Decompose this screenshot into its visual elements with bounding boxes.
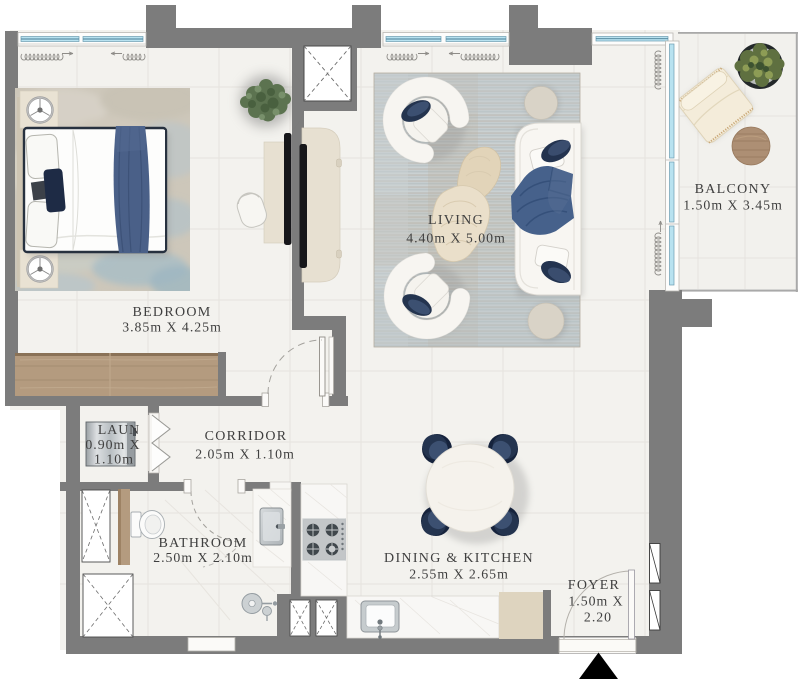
svg-text:2.05m X 1.10m: 2.05m X 1.10m <box>195 447 295 462</box>
svg-text:BALCONY: BALCONY <box>695 182 772 197</box>
svg-text:1.50m X 3.45m: 1.50m X 3.45m <box>683 198 783 213</box>
svg-text:2.50m X 2.10m: 2.50m X 2.10m <box>153 550 253 565</box>
svg-text:2.20: 2.20 <box>584 610 612 625</box>
svg-text:DINING & KITCHEN: DINING & KITCHEN <box>384 551 534 566</box>
svg-text:BATHROOM: BATHROOM <box>159 536 248 551</box>
svg-text:1.10m: 1.10m <box>94 452 134 467</box>
svg-text:FOYER: FOYER <box>568 578 620 593</box>
svg-text:LIVING: LIVING <box>428 213 484 228</box>
svg-text:3.85m X 4.25m: 3.85m X 4.25m <box>122 320 222 335</box>
svg-text:4.40m X 5.00m: 4.40m X 5.00m <box>406 231 506 246</box>
svg-text:CORRIDOR: CORRIDOR <box>205 429 288 444</box>
svg-text:0.90m X: 0.90m X <box>85 437 140 452</box>
svg-text:LAUN: LAUN <box>98 422 140 437</box>
svg-text:1.50m X: 1.50m X <box>568 594 623 609</box>
svg-text:2.55m X 2.65m: 2.55m X 2.65m <box>409 567 509 582</box>
svg-text:BEDROOM: BEDROOM <box>132 305 211 320</box>
